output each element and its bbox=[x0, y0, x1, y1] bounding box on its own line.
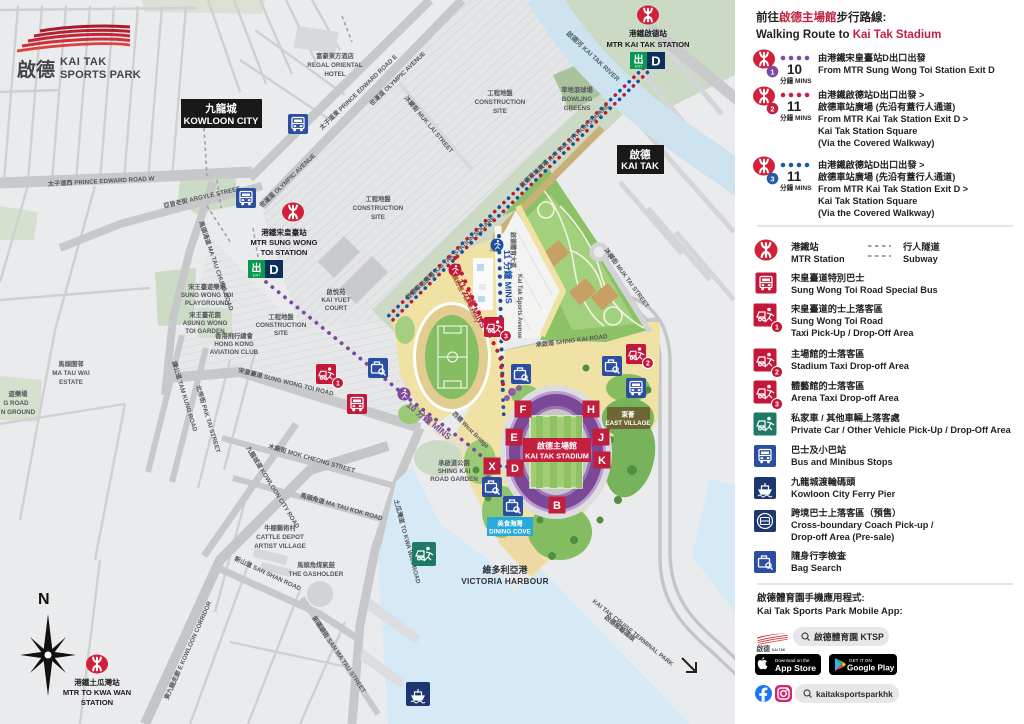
svg-text:私家車 / 其他車輛上落客處: 私家車 / 其他車輛上落客處 bbox=[790, 412, 901, 423]
svg-text:EAST VILLAGE: EAST VILLAGE bbox=[605, 420, 650, 427]
svg-text:N: N bbox=[38, 591, 50, 608]
svg-text:Bag Search: Bag Search bbox=[791, 563, 842, 573]
svg-text:KAI YUET: KAI YUET bbox=[321, 297, 350, 304]
svg-text:PLAYGROUND: PLAYGROUND bbox=[185, 300, 230, 307]
svg-text:Kowloon City Ferry Pier: Kowloon City Ferry Pier bbox=[791, 489, 896, 499]
svg-text:啟德體育園手機應用程式:: 啟德體育園手機應用程式: bbox=[757, 592, 865, 604]
svg-text:BOWLING: BOWLING bbox=[562, 96, 593, 103]
svg-text:H: H bbox=[587, 404, 595, 416]
svg-text:行人隧道: 行人隧道 bbox=[902, 241, 941, 252]
svg-text:TOI GARDEN: TOI GARDEN bbox=[185, 328, 225, 335]
svg-text:KOWLOON CITY: KOWLOON CITY bbox=[184, 116, 260, 127]
svg-text:EXIT: EXIT bbox=[635, 65, 643, 69]
svg-text:由港鐵宋皇臺站D出口出發: 由港鐵宋皇臺站D出口出發 bbox=[818, 52, 927, 63]
svg-text:草地滾球場: 草地滾球場 bbox=[561, 85, 593, 94]
svg-text:Walking Route to Kai Tak Stadi: Walking Route to Kai Tak Stadium bbox=[756, 29, 941, 41]
svg-text:ARTIST VILLAGE: ARTIST VILLAGE bbox=[254, 543, 306, 550]
svg-text:宋皇臺道的士上落客區: 宋皇臺道的士上落客區 bbox=[790, 303, 883, 314]
svg-text:SHING KAI: SHING KAI bbox=[438, 468, 471, 475]
svg-text:F: F bbox=[520, 404, 527, 416]
svg-text:啟德: 啟德 bbox=[630, 148, 651, 161]
svg-text:11: 11 bbox=[787, 99, 802, 114]
svg-text:Cross-boundary Coach Pick-up /: Cross-boundary Coach Pick-up / bbox=[791, 520, 934, 530]
svg-text:Arena Taxi Drop-off Area: Arena Taxi Drop-off Area bbox=[791, 393, 900, 403]
svg-text:CONSTRUCTION: CONSTRUCTION bbox=[353, 205, 404, 212]
svg-text:牛棚藝術村: 牛棚藝術村 bbox=[264, 523, 296, 532]
svg-text:REGAL ORIENTAL: REGAL ORIENTAL bbox=[307, 62, 363, 69]
svg-text:宋王臺遊樂場: 宋王臺遊樂場 bbox=[188, 282, 226, 291]
svg-text:KAI TAK: KAI TAK bbox=[621, 161, 659, 172]
svg-text:THE GASHOLDER: THE GASHOLDER bbox=[289, 571, 344, 578]
svg-text:富豪東方酒店: 富豪東方酒店 bbox=[316, 51, 354, 60]
svg-text:啟德車站廣場 (先沿有蓋行人通道): 啟德車站廣場 (先沿有蓋行人通道) bbox=[818, 101, 955, 112]
svg-text:工程地盤: 工程地盤 bbox=[487, 88, 513, 97]
svg-text:SITE: SITE bbox=[371, 214, 385, 221]
svg-text:SUNG WONG TOI: SUNG WONG TOI bbox=[181, 292, 234, 299]
svg-text:D: D bbox=[269, 262, 278, 277]
svg-text:HOTEL: HOTEL bbox=[324, 71, 345, 78]
svg-text:2: 2 bbox=[646, 361, 650, 368]
svg-text:港鐵土瓜灣站: 港鐵土瓜灣站 bbox=[74, 677, 120, 687]
svg-text:From MTR Kai Tak Station Exit: From MTR Kai Tak Station Exit D > bbox=[818, 184, 968, 194]
svg-text:MTR Station: MTR Station bbox=[791, 254, 845, 264]
svg-text:E: E bbox=[510, 432, 517, 444]
svg-text:From MTR Kai Tak Station Exit: From MTR Kai Tak Station Exit D > bbox=[818, 114, 968, 124]
svg-text:Kai Tak Station Square: Kai Tak Station Square bbox=[818, 126, 917, 136]
svg-text:Private Car / Other Vehicle Pi: Private Car / Other Vehicle Pick-Up / Dr… bbox=[791, 425, 1012, 435]
svg-text:GREENS: GREENS bbox=[564, 105, 591, 112]
svg-text:VICTORIA HARBOUR: VICTORIA HARBOUR bbox=[461, 577, 549, 586]
svg-text:1: 1 bbox=[770, 68, 774, 77]
svg-text:工程地盤: 工程地盤 bbox=[365, 194, 391, 203]
svg-text:遊樂場: 遊樂場 bbox=[9, 389, 29, 398]
svg-text:EXIT: EXIT bbox=[253, 274, 261, 278]
svg-text:GET IT ON: GET IT ON bbox=[849, 658, 872, 663]
svg-text:巴士及小巴站: 巴士及小巴站 bbox=[791, 444, 847, 455]
svg-text:隨身行李檢查: 隨身行李檢查 bbox=[791, 550, 847, 561]
svg-text:分鐘 MINS: 分鐘 MINS bbox=[780, 113, 812, 122]
svg-text:由港鐵啟德站D出口出發 >: 由港鐵啟德站D出口出發 > bbox=[818, 159, 924, 170]
svg-text:Drop-off Area (Pre-sale): Drop-off Area (Pre-sale) bbox=[791, 532, 894, 542]
svg-text:3: 3 bbox=[504, 334, 508, 341]
svg-text:由港鐵啟德站D出口出發 >: 由港鐵啟德站D出口出發 > bbox=[818, 89, 924, 100]
svg-text:港鐵宋皇臺站: 港鐵宋皇臺站 bbox=[261, 227, 307, 237]
svg-text:馬頭角煤氣鼓: 馬頭角煤氣鼓 bbox=[297, 560, 335, 569]
svg-text:STATION: STATION bbox=[81, 698, 113, 707]
svg-text:Taxi Pick-Up / Drop-Off Area: Taxi Pick-Up / Drop-Off Area bbox=[791, 328, 914, 338]
svg-text:Sung Wong Toi Road: Sung Wong Toi Road bbox=[791, 316, 883, 326]
svg-text:美食海灣: 美食海灣 bbox=[497, 519, 523, 528]
svg-text:主場館的士落客區: 主場館的士落客區 bbox=[791, 348, 865, 359]
svg-text:AVIATION CLUB: AVIATION CLUB bbox=[210, 349, 259, 356]
svg-text:Stadium Taxi Drop-off Area: Stadium Taxi Drop-off Area bbox=[791, 361, 910, 371]
svg-text:前往啟德主場館步行路線:: 前往啟德主場館步行路線: bbox=[756, 10, 886, 24]
svg-text:Kai Tak Station Square: Kai Tak Station Square bbox=[818, 196, 917, 206]
svg-text:宋王臺花園: 宋王臺花園 bbox=[189, 310, 220, 319]
svg-text:CONSTRUCTION: CONSTRUCTION bbox=[475, 99, 526, 106]
svg-text:11: 11 bbox=[787, 169, 802, 184]
svg-text:DINING COVE: DINING COVE bbox=[489, 529, 531, 536]
svg-text:D: D bbox=[651, 54, 660, 69]
svg-text:體藝館的士落客區: 體藝館的士落客區 bbox=[791, 380, 865, 391]
svg-text:港鐵啟德站: 港鐵啟德站 bbox=[629, 28, 667, 38]
svg-text:2: 2 bbox=[775, 370, 779, 377]
svg-text:K: K bbox=[598, 455, 606, 467]
svg-text:東薈: 東薈 bbox=[622, 410, 636, 419]
svg-text:App Store: App Store bbox=[775, 663, 816, 673]
svg-text:宋皇臺道特別巴士: 宋皇臺道特別巴士 bbox=[790, 272, 865, 283]
svg-text:From MTR Sung Wong Toi Station: From MTR Sung Wong Toi Station Exit D bbox=[818, 65, 995, 75]
svg-text:3: 3 bbox=[775, 402, 779, 409]
svg-text:B: B bbox=[553, 500, 561, 512]
svg-text:2: 2 bbox=[770, 105, 774, 114]
svg-text:11 分鐘 MINS: 11 分鐘 MINS bbox=[502, 250, 515, 304]
svg-text:10: 10 bbox=[787, 62, 802, 77]
svg-text:SITE: SITE bbox=[274, 330, 288, 337]
svg-text:HONG KONG: HONG KONG bbox=[214, 341, 254, 348]
svg-text:MTR SUNG WONG: MTR SUNG WONG bbox=[250, 238, 317, 247]
svg-text:X: X bbox=[488, 461, 496, 473]
svg-text:KAI TAK STADIUM: KAI TAK STADIUM bbox=[525, 452, 589, 461]
svg-text:SITE: SITE bbox=[493, 108, 507, 115]
svg-text:(Via the Covered Walkway): (Via the Covered Walkway) bbox=[818, 138, 934, 148]
svg-text:1: 1 bbox=[336, 381, 340, 388]
svg-text:ESTATE: ESTATE bbox=[59, 379, 83, 386]
svg-text:MTR TO KWA WAN: MTR TO KWA WAN bbox=[63, 688, 131, 697]
svg-text:九龍城渡輪碼頭: 九龍城渡輪碼頭 bbox=[790, 476, 856, 487]
svg-text:跨境巴士上落客區（預售）: 跨境巴士上落客區（預售） bbox=[791, 507, 901, 518]
svg-text:Sung Wong Toi Road Special Bus: Sung Wong Toi Road Special Bus bbox=[791, 285, 938, 295]
svg-text:分鐘 MINS: 分鐘 MINS bbox=[780, 76, 812, 85]
svg-text:CONSTRUCTION: CONSTRUCTION bbox=[256, 322, 307, 329]
svg-text:啟德主場館: 啟德主場館 bbox=[537, 441, 577, 451]
svg-text:N GROUND: N GROUND bbox=[1, 409, 36, 416]
svg-text:(Via the Covered Walkway): (Via the Covered Walkway) bbox=[818, 208, 934, 218]
svg-text:承啟道公園: 承啟道公園 bbox=[438, 458, 469, 467]
svg-text:啟德車站廣場 (先沿有蓋行人通道): 啟德車站廣場 (先沿有蓋行人通道) bbox=[818, 171, 955, 182]
svg-text:D: D bbox=[511, 463, 519, 475]
svg-text:Kai Tak Sports Avenue: Kai Tak Sports Avenue bbox=[516, 274, 522, 339]
svg-text:九龍城: 九龍城 bbox=[204, 102, 237, 115]
svg-text:馬頭圍邨: 馬頭圍邨 bbox=[58, 359, 84, 368]
svg-text:ROAD GARDEN: ROAD GARDEN bbox=[430, 476, 478, 483]
svg-text:3: 3 bbox=[770, 175, 774, 184]
svg-text:啟德體育園 KTSP: 啟德體育園 KTSP bbox=[814, 631, 884, 642]
svg-text:啟德 KAI TAK: 啟德 KAI TAK bbox=[757, 644, 786, 653]
svg-text:工程地盤: 工程地盤 bbox=[268, 312, 294, 321]
svg-text:TOI STATION: TOI STATION bbox=[261, 248, 308, 257]
svg-text:Bus and Minibus Stops: Bus and Minibus Stops bbox=[791, 457, 893, 467]
svg-text:Google Play: Google Play bbox=[847, 664, 895, 673]
svg-text:kaitaksportsparkhk: kaitaksportsparkhk bbox=[816, 689, 893, 699]
svg-text:G ROAD: G ROAD bbox=[3, 400, 29, 407]
svg-text:CATTLE DEPOT: CATTLE DEPOT bbox=[256, 534, 304, 541]
svg-text:啟悅苑: 啟悅苑 bbox=[327, 287, 347, 296]
svg-text:分鐘 MINS: 分鐘 MINS bbox=[780, 183, 812, 192]
svg-text:啟德: 啟德 bbox=[17, 58, 55, 81]
svg-text:維多利亞港: 維多利亞港 bbox=[482, 564, 528, 575]
svg-text:KAI TAK: KAI TAK bbox=[60, 56, 107, 68]
svg-text:1: 1 bbox=[775, 325, 779, 332]
svg-text:ASUNG WONG: ASUNG WONG bbox=[183, 320, 228, 327]
svg-text:MTR KAI TAK STATION: MTR KAI TAK STATION bbox=[606, 40, 689, 49]
svg-text:Kai Tak Sports Park Mobile App: Kai Tak Sports Park Mobile App: bbox=[757, 606, 903, 617]
svg-text:MA TAU WAI: MA TAU WAI bbox=[52, 370, 90, 377]
svg-text:港鐵站: 港鐵站 bbox=[791, 241, 819, 252]
svg-text:Subway: Subway bbox=[903, 254, 939, 264]
svg-text:J: J bbox=[598, 432, 604, 444]
svg-text:SPORTS PARK: SPORTS PARK bbox=[60, 69, 141, 81]
svg-text:COURT: COURT bbox=[325, 305, 348, 312]
